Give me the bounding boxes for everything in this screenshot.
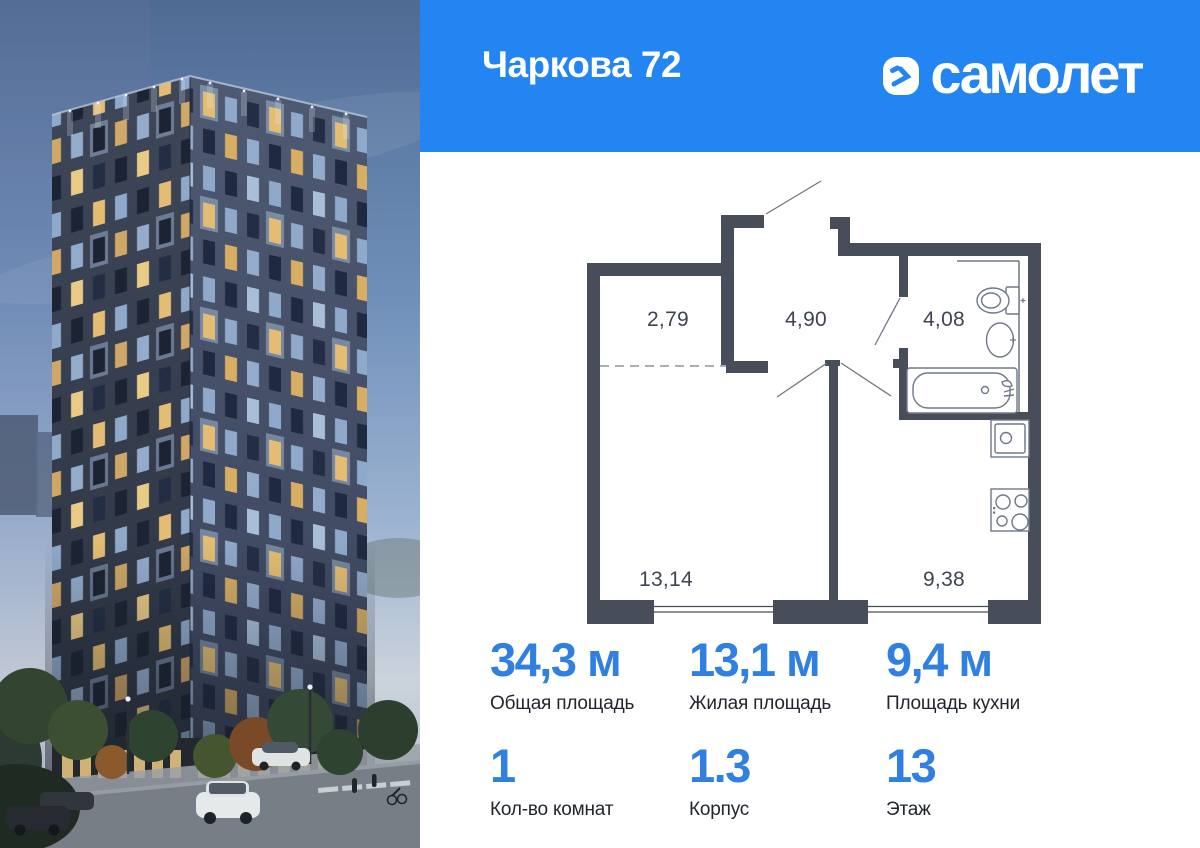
stat-label: Жилая площадь	[689, 693, 884, 715]
stat-kitchen-area: 9,4 м Площадь кухни	[886, 636, 1081, 715]
stat-value: 9,4 м	[886, 636, 1081, 683]
stat-value: 13,1 м	[689, 636, 884, 683]
kitchen-sink-icon	[991, 420, 1029, 457]
stat-value: 13	[886, 742, 1081, 789]
stat-label: Общая площадь	[490, 693, 685, 715]
stat-label: Этаж	[886, 799, 1081, 821]
floorplan-drawing: 2,79 4,90 4,08 13,14 9,38	[580, 175, 1050, 630]
apartment-card: Чаркова 72 самолет	[0, 0, 1200, 848]
building-photo-illustration	[0, 0, 420, 848]
stat-building: 1.3 Корпус	[689, 742, 884, 821]
kitchen-fixtures	[991, 420, 1029, 531]
room-area-label: 4,90	[785, 308, 827, 331]
stat-label: Корпус	[689, 799, 884, 821]
floorplan: 2,79 4,90 4,08 13,14 9,38	[580, 175, 1050, 630]
sink-icon	[987, 323, 1017, 357]
room-area-labels: 2,79 4,90 4,08 13,14 9,38	[639, 308, 965, 591]
bathtub-icon	[907, 368, 1017, 413]
room-area-label: 9,38	[923, 568, 965, 591]
toilet-icon	[977, 287, 1026, 314]
stove-icon	[991, 489, 1029, 531]
stat-label: Площадь кухни	[886, 693, 1081, 715]
building-photo	[0, 0, 420, 848]
bathroom-fixtures	[907, 287, 1026, 413]
room-area-label: 2,79	[647, 308, 689, 331]
stat-rooms-count: 1 Кол-во комнат	[490, 742, 685, 821]
samolet-logo-text: самолет	[930, 46, 1142, 102]
stat-label: Кол-во комнат	[490, 799, 685, 821]
stat-value: 34,3 м	[490, 636, 685, 683]
room-area-label: 4,08	[923, 308, 965, 331]
stat-living-area: 13,1 м Жилая площадь	[689, 636, 884, 715]
project-title: Чаркова 72	[482, 46, 681, 83]
samolet-logo: самолет	[883, 0, 1142, 152]
stat-floor: 13 Этаж	[886, 742, 1081, 821]
stat-value: 1.3	[689, 742, 884, 789]
samolet-chevron-icon	[883, 57, 919, 95]
walls	[587, 215, 1041, 624]
header: Чаркова 72 самолет	[420, 0, 1200, 152]
stat-total-area: 34,3 м Общая площадь	[490, 636, 685, 715]
stat-value: 1	[490, 742, 685, 789]
room-area-label: 13,14	[639, 568, 693, 591]
